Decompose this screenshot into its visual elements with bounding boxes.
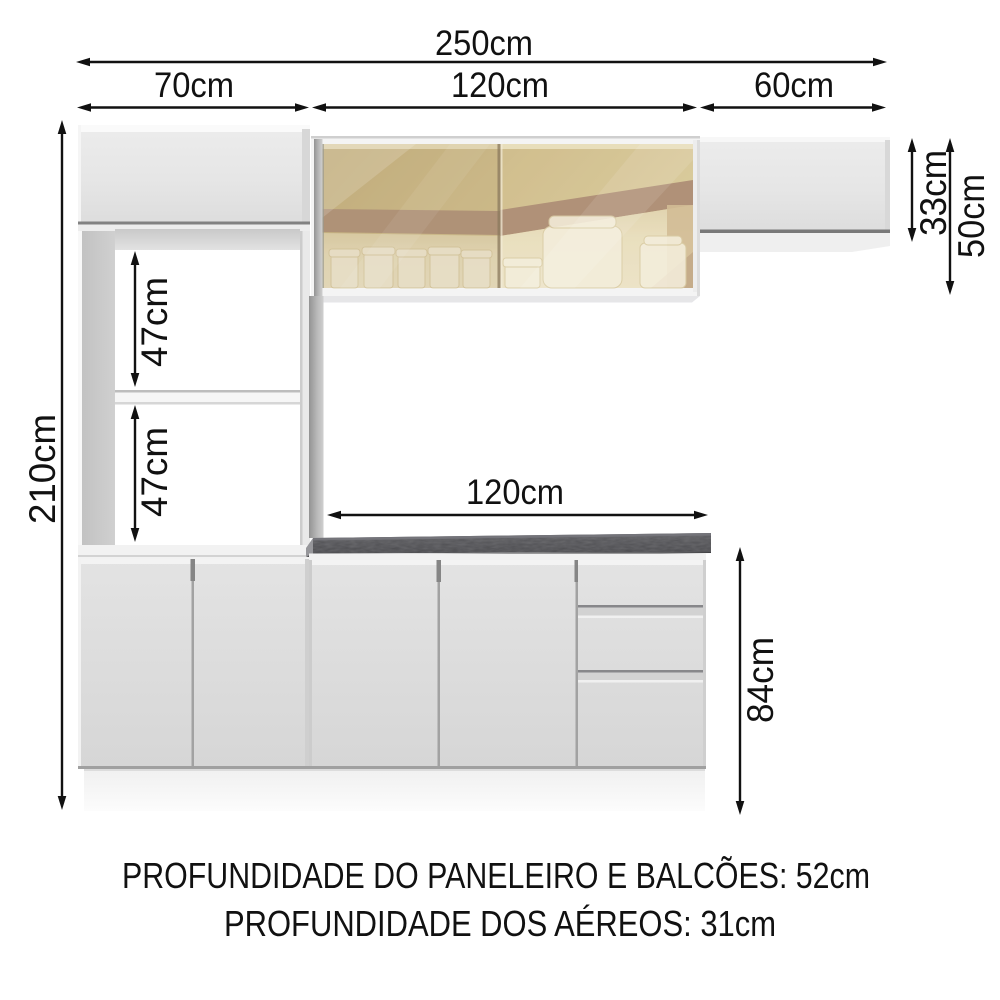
svg-text:PROFUNDIDADE DOS AÉREOS: 31cm: PROFUNDIDADE DOS AÉREOS: 31cm bbox=[224, 903, 776, 944]
svg-text:33cm: 33cm bbox=[913, 150, 954, 236]
svg-text:PROFUNDIDADE DO PANELEIRO E BA: PROFUNDIDADE DO PANELEIRO E BALCÕES: 52c… bbox=[122, 855, 870, 896]
svg-text:70cm: 70cm bbox=[154, 66, 234, 105]
svg-text:60cm: 60cm bbox=[754, 66, 834, 105]
svg-text:50cm: 50cm bbox=[951, 174, 992, 258]
svg-text:120cm: 120cm bbox=[451, 66, 549, 105]
svg-text:47cm: 47cm bbox=[134, 427, 175, 517]
svg-text:47cm: 47cm bbox=[134, 277, 175, 367]
svg-text:250cm: 250cm bbox=[435, 24, 533, 63]
svg-text:120cm: 120cm bbox=[466, 473, 564, 512]
svg-text:210cm: 210cm bbox=[22, 414, 63, 524]
svg-text:84cm: 84cm bbox=[740, 637, 781, 723]
